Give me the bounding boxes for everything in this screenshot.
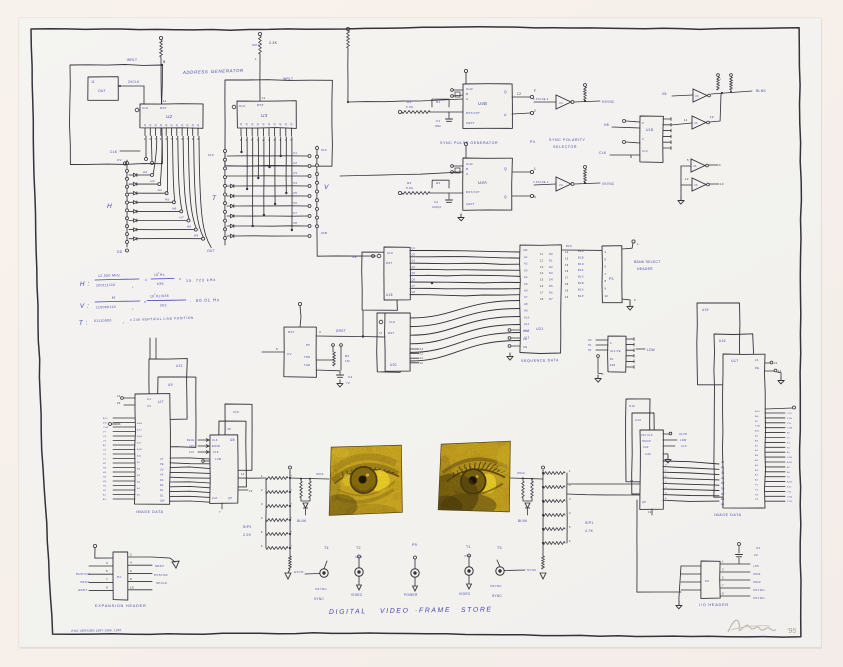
svg-text:r: r bbox=[291, 531, 292, 534]
svg-text:72: 72 bbox=[346, 381, 350, 385]
svg-text:10: 10 bbox=[420, 362, 424, 365]
svg-text:Q1: Q1 bbox=[412, 247, 416, 250]
svg-text:V6: V6 bbox=[293, 201, 297, 205]
svg-text:H5: H5 bbox=[165, 197, 169, 201]
svg-text:LRN: LRN bbox=[189, 445, 195, 448]
svg-text:OUT: OUT bbox=[98, 89, 106, 93]
svg-text:H1: H1 bbox=[103, 490, 107, 492]
svg-text:P1: P1 bbox=[755, 485, 759, 487]
svg-text:V5: V5 bbox=[293, 191, 297, 195]
svg-text:CLK: CLK bbox=[212, 497, 218, 500]
svg-text:B1P: B1P bbox=[578, 294, 584, 298]
svg-text:2.2K: 2.2K bbox=[243, 533, 252, 537]
svg-text:6: 6 bbox=[569, 539, 571, 543]
svg-text:1: 1 bbox=[261, 474, 263, 478]
svg-text:330pf: 330pf bbox=[432, 205, 441, 209]
svg-text:A2: A2 bbox=[755, 469, 759, 472]
svg-text:2XCLK: 2XCLK bbox=[128, 80, 140, 84]
svg-text:WRLT: WRLT bbox=[127, 58, 137, 62]
svg-text:U4: U4 bbox=[559, 101, 563, 105]
svg-text:C1: C1 bbox=[436, 119, 440, 123]
svg-text:5: 5 bbox=[276, 347, 278, 351]
svg-text:5.6K: 5.6K bbox=[406, 186, 413, 190]
svg-text:12.000 MHz: 12.000 MHz bbox=[98, 273, 120, 278]
svg-text:T1: T1 bbox=[466, 545, 471, 549]
svg-text:Q: Q bbox=[144, 123, 146, 127]
svg-text:CLK: CLK bbox=[599, 151, 607, 155]
svg-text:B17: B17 bbox=[103, 423, 108, 425]
svg-text:A6: A6 bbox=[524, 289, 528, 293]
svg-text:4: 4 bbox=[130, 561, 132, 565]
svg-text:H4: H4 bbox=[103, 477, 107, 479]
svg-text:DD: DD bbox=[117, 250, 123, 254]
svg-text:J1: J1 bbox=[91, 80, 95, 84]
svg-text:8: 8 bbox=[605, 279, 607, 283]
svg-text:VSYNC: VSYNC bbox=[602, 182, 615, 186]
svg-text:EXPANSION HEADER: EXPANSION HEADER bbox=[95, 604, 147, 608]
svg-text:01110000: 01110000 bbox=[94, 318, 112, 323]
svg-text:V5: V5 bbox=[103, 436, 107, 438]
svg-text:Q: Q bbox=[268, 122, 270, 126]
svg-text:12: 12 bbox=[241, 472, 245, 476]
svg-text:V10: V10 bbox=[233, 410, 239, 414]
svg-text:V :: V : bbox=[80, 303, 90, 310]
svg-text:B1B: B1B bbox=[578, 255, 584, 259]
svg-text:10: 10 bbox=[605, 294, 609, 298]
svg-text:U16: U16 bbox=[629, 404, 635, 408]
svg-text:U4: U4 bbox=[160, 474, 164, 477]
svg-text:CLK: CLK bbox=[213, 450, 219, 454]
svg-text:CLR: CLR bbox=[466, 162, 473, 166]
svg-text:A1: A1 bbox=[721, 477, 725, 480]
svg-text:U: U bbox=[504, 113, 507, 117]
svg-text:VRST: VRST bbox=[80, 580, 89, 584]
svg-text:16: 16 bbox=[540, 284, 544, 288]
svg-text:1M: 1M bbox=[345, 359, 350, 363]
svg-text:HSYN: HSYN bbox=[294, 570, 304, 574]
svg-text:K11: K11 bbox=[787, 487, 792, 489]
svg-text:7: 7 bbox=[219, 510, 221, 514]
svg-text:V2: V2 bbox=[103, 454, 107, 456]
svg-text:'95: '95 bbox=[787, 628, 796, 635]
svg-text:5: 5 bbox=[687, 158, 689, 162]
svg-text:B1X: B1X bbox=[578, 275, 584, 279]
svg-text:D5: D5 bbox=[549, 284, 553, 288]
svg-text:T :: T : bbox=[79, 319, 89, 327]
svg-text:A4: A4 bbox=[524, 275, 528, 279]
svg-text:Q: Q bbox=[246, 122, 248, 126]
svg-text:4: 4 bbox=[605, 250, 607, 254]
svg-text:Q: Q bbox=[197, 123, 199, 127]
svg-text:SYNC: SYNC bbox=[314, 597, 324, 601]
svg-text:G: G bbox=[665, 465, 667, 467]
svg-text:H9: H9 bbox=[194, 234, 198, 238]
svg-text:PHSYNC: PHSYNC bbox=[76, 572, 91, 576]
svg-text:13: 13 bbox=[720, 182, 724, 186]
svg-text:A1A: A1A bbox=[137, 422, 142, 425]
svg-text:D1: D1 bbox=[160, 494, 164, 497]
svg-text:A1B: A1B bbox=[137, 448, 142, 451]
svg-text:SYNC POLARITY: SYNC POLARITY bbox=[549, 138, 586, 142]
svg-text:OE: OE bbox=[523, 345, 527, 349]
svg-text:V1A: V1A bbox=[787, 495, 792, 498]
svg-text:5.6K: 5.6K bbox=[406, 105, 413, 109]
svg-text:I/O HEADER: I/O HEADER bbox=[699, 603, 729, 607]
svg-text:A3: A3 bbox=[755, 464, 759, 467]
svg-text:P1: P1 bbox=[117, 575, 121, 579]
svg-text:D2: D2 bbox=[160, 484, 164, 487]
svg-text:K1: K1 bbox=[787, 477, 791, 479]
svg-text:B1A: B1A bbox=[578, 287, 584, 291]
svg-text:H7: H7 bbox=[103, 463, 107, 465]
svg-text:R4: R4 bbox=[407, 181, 411, 185]
svg-text:21: 21 bbox=[755, 358, 759, 362]
svg-text:V1B: V1B bbox=[787, 501, 792, 503]
svg-text:10 Hz/636: 10 Hz/636 bbox=[150, 294, 169, 299]
svg-text:Q: Q bbox=[171, 123, 173, 127]
svg-text:·FRAME: ·FRAME bbox=[415, 607, 451, 615]
svg-text:K1A: K1A bbox=[787, 456, 792, 459]
svg-text:A1B: A1B bbox=[787, 461, 792, 464]
svg-text:SYNC: SYNC bbox=[527, 568, 537, 572]
svg-text:U17: U17 bbox=[731, 359, 739, 363]
svg-text:2: 2 bbox=[261, 488, 263, 492]
svg-text:20: 20 bbox=[117, 401, 121, 405]
svg-text:19: 19 bbox=[565, 288, 569, 292]
svg-text:WRLT: WRLT bbox=[283, 77, 293, 81]
svg-text:5: 5 bbox=[569, 525, 571, 529]
svg-text:OV: OV bbox=[117, 158, 122, 162]
svg-text:4: 4 bbox=[569, 511, 571, 515]
svg-text:V8: V8 bbox=[352, 255, 357, 259]
svg-text:U4A: U4A bbox=[478, 180, 487, 185]
svg-text:A1: A1 bbox=[755, 435, 759, 438]
svg-text:U12: U12 bbox=[176, 364, 183, 368]
svg-text:CLK: CLK bbox=[387, 251, 393, 255]
svg-text:U20: U20 bbox=[390, 363, 397, 367]
svg-text:10: 10 bbox=[710, 115, 714, 119]
svg-text:3: 3 bbox=[261, 502, 263, 506]
svg-text:P2: P2 bbox=[755, 489, 759, 491]
svg-text:QH: QH bbox=[642, 501, 646, 504]
svg-text:H6: H6 bbox=[103, 468, 107, 470]
svg-text:K7: K7 bbox=[787, 438, 791, 440]
svg-text:17: 17 bbox=[379, 331, 383, 335]
svg-text:SYNC PULSE GENERATOR: SYNC PULSE GENERATOR bbox=[440, 141, 498, 145]
svg-text:A5: A5 bbox=[755, 454, 759, 457]
svg-text:C: C bbox=[642, 137, 644, 141]
svg-text:U1B: U1B bbox=[646, 128, 654, 132]
svg-text:18: 18 bbox=[565, 282, 569, 286]
svg-text:D: D bbox=[665, 481, 667, 483]
svg-text:D4: D4 bbox=[721, 482, 725, 485]
svg-text:RST: RST bbox=[288, 330, 295, 334]
svg-text:+5V: +5V bbox=[753, 564, 759, 568]
svg-text:12: 12 bbox=[648, 510, 652, 514]
svg-text:5: 5 bbox=[722, 576, 724, 580]
svg-text:12: 12 bbox=[420, 353, 424, 356]
svg-text:V3: V3 bbox=[293, 171, 297, 175]
svg-text:A11: A11 bbox=[137, 455, 142, 458]
svg-text:SIP1: SIP1 bbox=[252, 43, 260, 47]
svg-text:L: L bbox=[255, 57, 257, 61]
svg-text:A: A bbox=[466, 97, 468, 101]
svg-text:U7: U7 bbox=[158, 399, 164, 404]
svg-text:U3: U3 bbox=[261, 113, 268, 118]
svg-text:A1: A1 bbox=[103, 498, 107, 501]
svg-text:A2: A2 bbox=[524, 262, 528, 266]
svg-text:H2: H2 bbox=[143, 170, 147, 174]
svg-text:B1B: B1B bbox=[578, 281, 584, 285]
svg-text:7: 7 bbox=[722, 584, 724, 588]
svg-text:U6: U6 bbox=[694, 184, 698, 187]
svg-text:CLK: CLK bbox=[681, 444, 687, 448]
svg-text:B1: B1 bbox=[610, 358, 614, 361]
svg-text:C4: C4 bbox=[756, 546, 760, 550]
svg-text:H3: H3 bbox=[103, 481, 107, 483]
svg-text:636: 636 bbox=[157, 282, 164, 286]
svg-text:262: 262 bbox=[160, 303, 167, 307]
svg-text:SEQUENCE DATA: SEQUENCE DATA bbox=[521, 358, 559, 363]
svg-text:BANK SELECT: BANK SELECT bbox=[634, 260, 661, 264]
svg-text:V4: V4 bbox=[103, 441, 107, 443]
svg-text:11: 11 bbox=[262, 96, 266, 100]
svg-text:ADDRESS: ADDRESS bbox=[182, 69, 209, 75]
svg-text:B: B bbox=[665, 493, 667, 495]
svg-text:R/W: R/W bbox=[523, 329, 529, 333]
svg-text:Q7: Q7 bbox=[412, 285, 416, 288]
svg-text:DIGITAL: DIGITAL bbox=[329, 608, 367, 616]
svg-text:13: 13 bbox=[249, 489, 253, 493]
svg-text:Q: Q bbox=[279, 122, 281, 126]
svg-text:A7: A7 bbox=[137, 474, 141, 477]
svg-text:A13: A13 bbox=[137, 429, 142, 432]
svg-text:V8: V8 bbox=[662, 92, 667, 96]
svg-text:Q: Q bbox=[186, 123, 188, 127]
svg-text:VSYNC: VSYNC bbox=[753, 588, 765, 592]
svg-text:6: 6 bbox=[130, 569, 132, 573]
svg-text:1: 1 bbox=[569, 469, 571, 473]
svg-text:P: P bbox=[642, 121, 644, 125]
svg-text:A13: A13 bbox=[103, 417, 108, 420]
svg-text:LDW: LDW bbox=[647, 348, 655, 352]
svg-text:C1: C1 bbox=[147, 397, 151, 401]
svg-text:H: H bbox=[107, 203, 112, 210]
svg-text:Q4: Q4 bbox=[412, 266, 416, 269]
svg-text:PVSYNC: PVSYNC bbox=[154, 573, 169, 577]
svg-text:1: 1 bbox=[637, 242, 639, 246]
svg-text:D6: D6 bbox=[549, 290, 553, 294]
svg-text:B1N: B1N bbox=[566, 244, 572, 248]
svg-text:5: 5 bbox=[605, 257, 607, 261]
svg-text:VSYNC: VSYNC bbox=[315, 587, 327, 591]
svg-text:12: 12 bbox=[540, 258, 544, 262]
svg-text:A13: A13 bbox=[755, 410, 760, 413]
svg-text:18: 18 bbox=[540, 297, 544, 301]
svg-text:U8: U8 bbox=[230, 438, 235, 442]
svg-text:V1: V1 bbox=[293, 151, 297, 155]
svg-text:F: F bbox=[534, 89, 536, 93]
svg-text:5: 5 bbox=[261, 530, 263, 534]
svg-text:r: r bbox=[720, 78, 721, 81]
svg-text:A8: A8 bbox=[755, 415, 759, 418]
svg-text:U15 CLK: U15 CLK bbox=[641, 434, 653, 437]
svg-text:R3: R3 bbox=[407, 100, 411, 104]
svg-text:13: 13 bbox=[420, 348, 424, 351]
svg-text:Q: Q bbox=[285, 122, 287, 126]
svg-text:Q: Q bbox=[181, 123, 183, 127]
svg-text:Q: Q bbox=[290, 122, 292, 126]
svg-text:r: r bbox=[291, 489, 292, 492]
svg-text:D4: D4 bbox=[549, 278, 553, 282]
svg-text:OUT: OUT bbox=[207, 249, 215, 253]
svg-text:r: r bbox=[291, 545, 292, 548]
svg-text:T2: T2 bbox=[356, 546, 361, 550]
svg-text:2: 2 bbox=[130, 553, 132, 557]
svg-text:B1A: B1A bbox=[578, 249, 584, 253]
svg-text:r: r bbox=[291, 475, 292, 478]
svg-text:R2: R2 bbox=[436, 181, 440, 185]
svg-text:P1A: P1A bbox=[755, 425, 760, 428]
svg-text:A1: A1 bbox=[755, 479, 759, 482]
svg-text:A1: A1 bbox=[755, 474, 759, 477]
svg-text:V7: V7 bbox=[103, 432, 107, 434]
svg-text:r: r bbox=[291, 517, 292, 520]
svg-text:A4: A4 bbox=[755, 459, 759, 462]
svg-text:K1: K1 bbox=[787, 447, 791, 449]
svg-text:V2: V2 bbox=[293, 161, 297, 165]
svg-text:CLK: CLK bbox=[389, 320, 395, 324]
svg-text:C3: C3 bbox=[348, 375, 352, 379]
svg-text:H5: H5 bbox=[103, 472, 107, 474]
svg-text:V11: V11 bbox=[787, 491, 792, 493]
svg-text:H2: H2 bbox=[103, 486, 107, 488]
svg-text:HSYNC: HSYNC bbox=[602, 100, 615, 104]
svg-text:11: 11 bbox=[540, 252, 544, 256]
svg-text:Q: Q bbox=[504, 90, 507, 94]
svg-text:9: 9 bbox=[605, 287, 607, 291]
svg-text:VID1: VID1 bbox=[753, 572, 761, 576]
svg-text:8: 8 bbox=[130, 577, 132, 581]
svg-text:9: 9 bbox=[106, 586, 108, 590]
svg-text:CLK: CLK bbox=[189, 451, 195, 454]
svg-text:B: B bbox=[466, 92, 468, 96]
svg-text:VID2: VID2 bbox=[517, 471, 525, 475]
svg-text:H1: H1 bbox=[588, 344, 592, 347]
svg-text:A1B: A1B bbox=[787, 481, 792, 484]
svg-text:3: 3 bbox=[569, 497, 571, 501]
svg-text:12: 12 bbox=[685, 177, 689, 181]
svg-text:3: 3 bbox=[106, 561, 108, 565]
svg-text:A7: A7 bbox=[787, 466, 791, 469]
svg-text:A1: A1 bbox=[137, 487, 141, 490]
svg-text:010: 010 bbox=[208, 153, 214, 157]
svg-text:4.7K: 4.7K bbox=[585, 529, 594, 533]
svg-text:13: 13 bbox=[540, 265, 544, 269]
svg-text:U2: U2 bbox=[166, 114, 173, 119]
svg-text:BLNK: BLNK bbox=[756, 89, 766, 93]
svg-text:U6: U6 bbox=[693, 165, 697, 168]
svg-text:A1: A1 bbox=[787, 471, 791, 474]
svg-text:11: 11 bbox=[420, 357, 423, 360]
svg-text:SYNC: SYNC bbox=[492, 594, 502, 598]
svg-text:P5: P5 bbox=[306, 343, 310, 347]
svg-text:A8: A8 bbox=[755, 439, 759, 442]
svg-text:6: 6 bbox=[261, 544, 263, 548]
svg-text:U18: U18 bbox=[386, 293, 393, 297]
svg-text:VSYNC: VSYNC bbox=[490, 584, 502, 588]
svg-text:1: 1 bbox=[722, 560, 724, 564]
svg-text:U9: U9 bbox=[168, 383, 173, 387]
svg-text:U13 PE: U13 PE bbox=[610, 349, 621, 353]
svg-text:D1: D1 bbox=[549, 258, 553, 262]
svg-text:A3: A3 bbox=[137, 481, 141, 484]
svg-text:A7: A7 bbox=[524, 295, 528, 299]
svg-text:A11: A11 bbox=[755, 430, 760, 433]
svg-text:CLR: CLR bbox=[466, 87, 473, 91]
svg-text:2.2K: 2.2K bbox=[269, 41, 278, 45]
svg-text:K1: K1 bbox=[787, 442, 791, 444]
svg-text:16: 16 bbox=[565, 269, 569, 273]
svg-text:17: 17 bbox=[540, 290, 544, 294]
svg-text:110000110: 110000110 bbox=[96, 305, 116, 310]
svg-text:POWER: POWER bbox=[404, 593, 418, 597]
svg-text:2: 2 bbox=[534, 109, 536, 113]
svg-text:H8: H8 bbox=[604, 123, 609, 127]
svg-text:U16: U16 bbox=[719, 339, 726, 343]
svg-text:.082: .082 bbox=[434, 124, 441, 128]
svg-text:21: 21 bbox=[774, 361, 778, 365]
svg-text:U14: U14 bbox=[635, 418, 641, 422]
svg-text:11: 11 bbox=[163, 99, 167, 103]
svg-text:A1: A1 bbox=[103, 494, 107, 497]
svg-text:10: 10 bbox=[130, 585, 134, 589]
svg-text:1: 1 bbox=[534, 167, 536, 171]
svg-text:2: 2 bbox=[634, 298, 636, 302]
svg-text:r: r bbox=[291, 503, 292, 506]
svg-text:A1: A1 bbox=[755, 449, 759, 452]
svg-text:RXT/CXT: RXT/CXT bbox=[466, 111, 480, 115]
svg-text:U4: U4 bbox=[559, 183, 563, 187]
svg-text:V7: V7 bbox=[293, 211, 297, 215]
svg-text:3: 3 bbox=[319, 330, 321, 334]
svg-text:VID2: VID2 bbox=[753, 580, 761, 584]
svg-text:,: , bbox=[190, 298, 191, 303]
svg-text:CLK: CLK bbox=[212, 438, 218, 442]
svg-text:D2: D2 bbox=[549, 265, 553, 269]
svg-text:P3: P3 bbox=[609, 277, 614, 281]
svg-text:H8: H8 bbox=[187, 225, 191, 229]
svg-text:CEXT: CEXT bbox=[466, 121, 475, 125]
svg-text:Q: Q bbox=[160, 123, 162, 127]
svg-text:H: H bbox=[112, 295, 115, 300]
svg-text:A11: A11 bbox=[524, 322, 530, 326]
svg-text:VIDEO: VIDEO bbox=[459, 592, 471, 596]
svg-text:Q: Q bbox=[149, 123, 151, 127]
svg-text:V1: V1 bbox=[103, 459, 107, 461]
svg-text:QW: QW bbox=[160, 500, 165, 503]
svg-text:11: 11 bbox=[684, 118, 688, 122]
svg-text:V4: V4 bbox=[293, 181, 297, 185]
svg-text:Q: Q bbox=[504, 195, 507, 199]
svg-text:A1: A1 bbox=[137, 494, 141, 497]
svg-text:D7: D7 bbox=[549, 297, 553, 301]
svg-text:A1: A1 bbox=[524, 255, 528, 259]
svg-text:6: 6 bbox=[534, 195, 536, 199]
svg-text:H2: H2 bbox=[588, 349, 592, 352]
svg-text:SRST: SRST bbox=[155, 564, 164, 568]
svg-text:CM: CM bbox=[523, 248, 528, 252]
